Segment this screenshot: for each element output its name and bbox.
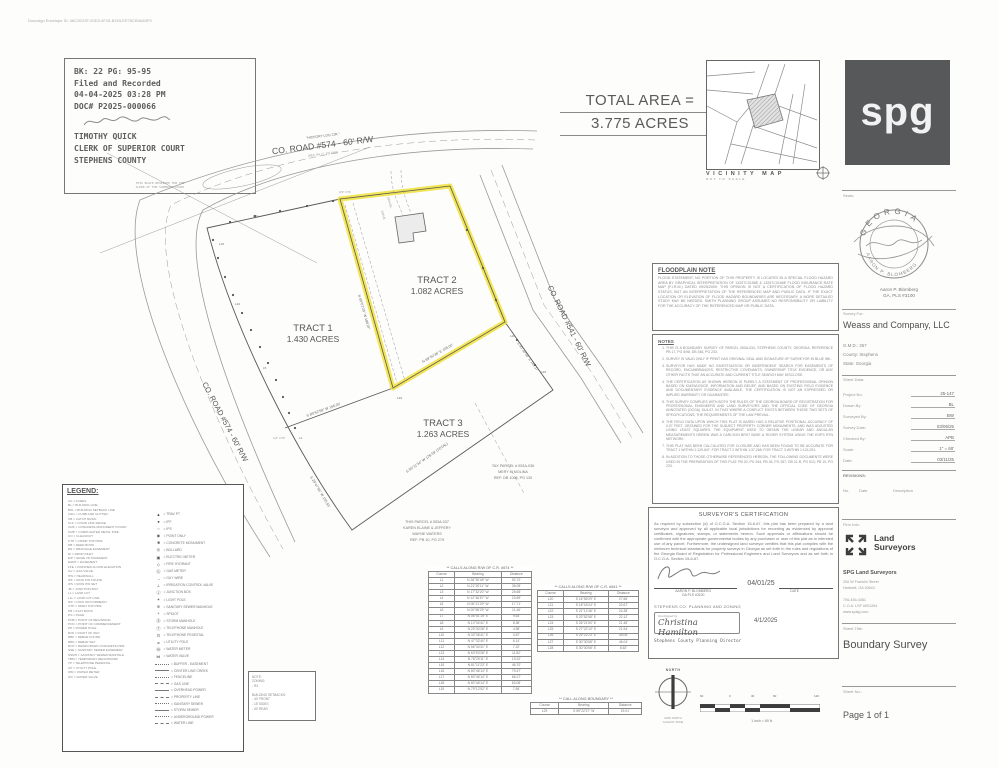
course-mark: L10 bbox=[235, 302, 240, 306]
sheet-data-rows: Project No. 25-147 Drawn By: BL Surveyed… bbox=[843, 386, 955, 463]
legend-symbol-label: = POINT ONLY bbox=[164, 535, 187, 538]
legend-symbol-item: Ⓦ = WATER METER bbox=[155, 648, 241, 652]
sheet-data-row: Surveyed By: BW bbox=[843, 408, 955, 419]
calls-table-cr541: ** CALLS ALONG R/W OF C.R. #541 ** Cours… bbox=[537, 585, 639, 652]
svg-text:GEORGIA: GEORGIA bbox=[858, 207, 921, 238]
legend-symbol-glyph: Ⓦ bbox=[155, 648, 162, 652]
note-item: IN ADDITION TO THOSE OTHERWISE REFERENCE… bbox=[666, 455, 833, 468]
corner-mark: 1/2" CTP bbox=[273, 436, 285, 440]
legend-symbol-label: = WATER METER bbox=[164, 648, 191, 651]
sheet-data-label: Sheet Data: bbox=[843, 377, 864, 382]
legend-symbol-label: = LIGHT POLE bbox=[164, 599, 186, 602]
legend-symbol-label: = IPF bbox=[164, 521, 172, 524]
svg-text:REF: PB 10, PG 279: REF: PB 10, PG 279 bbox=[410, 538, 444, 542]
linetype-sample bbox=[155, 723, 169, 724]
stamp-filed: Filed and Recorded bbox=[74, 78, 246, 90]
stamp-book-page: BK: 22 PG: 95-95 bbox=[74, 66, 246, 78]
certification-title: SURVEYOR'S CERTIFICATION bbox=[654, 512, 833, 518]
sheet-data-field-label: Project No. bbox=[843, 392, 863, 397]
legend-linetype-item: = PROPERTY LINE bbox=[155, 695, 241, 699]
legend-symbol-item: ■ = CONCRETE MONUMENT bbox=[155, 541, 241, 545]
legend-symbol-item: ○ = IPS bbox=[155, 527, 241, 531]
legend-linetypes: = BUFFER - EASEMENT = CENTER LINE CREEK … bbox=[155, 662, 241, 725]
sheet-data-field-value: 25-147 bbox=[911, 391, 955, 398]
legend-symbol-label: = FIRE HYDRANT bbox=[164, 563, 191, 566]
firm-name: SPG Land Surveyors bbox=[843, 570, 897, 576]
legend-symbol-item: ⋈ = WATER VALVE bbox=[155, 655, 241, 659]
legend-symbol-glyph: ⊡ bbox=[155, 634, 162, 638]
seal-surveyor-name: Aaron P. Blomberg GA, PLS #3100 bbox=[843, 287, 955, 300]
legend-symbol-glyph: Ⓙ bbox=[155, 591, 162, 595]
certification-body: As required by subsection (d) of O.C.G.A… bbox=[654, 521, 833, 562]
note-item: THIS IS A BOUNDARY SURVEY OF PARCEL 053A… bbox=[666, 346, 833, 355]
tract2-area: 1.082 ACRES bbox=[411, 286, 464, 296]
planning-director-signature: Christina Hamilton bbox=[658, 618, 736, 638]
course-mark: L29 bbox=[397, 396, 402, 400]
legend-symbol-glyph: ○ bbox=[155, 527, 162, 531]
svg-text:KAREN ELAINE & JEFFERY: KAREN ELAINE & JEFFERY bbox=[403, 526, 451, 530]
floodplain-note-title: FLOODPLAIN NOTE bbox=[658, 268, 833, 274]
docusign-signature-box: DocuSigned by: Christina Hamilton bbox=[654, 612, 740, 634]
firm-phone: 706-436-4381 bbox=[843, 598, 866, 602]
client-name: Weass and Company, LLC bbox=[843, 320, 957, 330]
legend-symbol-glyph: ▲ bbox=[155, 513, 162, 517]
legend-linetype-label: = WATER LINE bbox=[171, 721, 194, 725]
legend-symbol-item: ✶ = LIGHT POLE bbox=[155, 598, 241, 602]
firm-logo-text: Land Surveyors bbox=[874, 534, 916, 553]
calls-table-cr574: ** CALLS ALONG R/W OF C.R. #574 ** Cours… bbox=[428, 566, 532, 694]
vicinity-map-graphic bbox=[707, 61, 817, 167]
divider bbox=[842, 519, 956, 520]
sheet-data-field-label: Scale: bbox=[843, 447, 854, 452]
legend-linetype-label: = BUFFER - EASEMENT bbox=[171, 662, 208, 666]
sheet-data-field-value: 03/06/25 bbox=[911, 424, 955, 431]
sheet-data-row: Drawn By: BL bbox=[843, 397, 955, 408]
adjoiner-molina: TAX PARCEL # 053A-036 MERY M MOLINA REF:… bbox=[492, 464, 534, 480]
tract2-name: TRACT 2 bbox=[417, 275, 456, 286]
legend-symbol-label: = IRRIGATION CONTROL VALVE bbox=[164, 584, 214, 587]
legend-symbol-label: = SANITARY SEWER MANHOLE bbox=[164, 606, 213, 609]
legend-symbol-label: = SPIGOT bbox=[164, 613, 179, 616]
legend-symbol-label: = TRAV PT bbox=[164, 513, 180, 516]
revisions-label: REVISIONS: bbox=[843, 473, 866, 478]
legend-linetype-item: = SANITARY SEWER bbox=[155, 702, 241, 706]
vicinity-map bbox=[706, 60, 820, 170]
legend-symbols: ▲ = TRAV PT ● = IPF ○ = IPS ◉ = POINT ON… bbox=[155, 513, 241, 659]
tract1-name: TRACT 1 bbox=[293, 323, 332, 334]
legend-symbol-label: = UTILITY POLE bbox=[164, 641, 189, 644]
legend-symbol-glyph: ⋈ bbox=[155, 655, 162, 659]
course-mark: L1 bbox=[299, 436, 303, 440]
legend-symbol-item: Ⓣ = TELEPHONE MANHOLE bbox=[155, 627, 241, 631]
seal-arc-top: GEORGIA bbox=[858, 207, 921, 238]
legend-symbol-item: ⊡ = TELEPHONE PEDESTAL bbox=[155, 634, 241, 638]
approver-title: Stephens County Planning Director bbox=[654, 639, 833, 644]
boundary-survey-plat: { "page": { "envelope_id": "Docusign Env… bbox=[0, 0, 999, 768]
north-arrow: NORTH GRID NORTH GA EAST ZONE bbox=[640, 668, 706, 724]
legend-symbol-label: = IPS bbox=[164, 528, 172, 531]
legend-linetype-item: = STORM SEWER bbox=[155, 708, 241, 712]
road-right-label: CO. ROAD #541 - 60' R/W bbox=[546, 284, 593, 369]
table-title: ** CALLS ALONG R/W OF C.R. #574 ** bbox=[428, 566, 532, 570]
note-item: SURVEY IS VALID ONLY IF PRINT HAS ORIGIN… bbox=[666, 357, 833, 361]
sheet-data-field-value: 03/11/25 bbox=[911, 457, 955, 464]
legend-symbol-glyph: ✶ bbox=[155, 598, 162, 602]
legend-linetype-item: = BUFFER - EASEMENT bbox=[155, 662, 241, 666]
sheet-title-label: Sheet Title: bbox=[843, 626, 863, 631]
sheet-number: Page 1 of 1 bbox=[843, 710, 889, 720]
svg-text:WAYNE WATERS: WAYNE WATERS bbox=[412, 532, 442, 536]
seals-label: Seals: bbox=[843, 193, 854, 198]
legend-symbol-label: = BOLLARD bbox=[164, 549, 182, 552]
spg-logo-text: spg bbox=[860, 90, 934, 135]
legend-symbol-glyph: ▣ bbox=[155, 556, 162, 560]
course-mark: L5 bbox=[263, 366, 267, 370]
legend-symbol-item: ● = IPF bbox=[155, 520, 241, 524]
sheet-data-field-label: Date: bbox=[843, 458, 853, 463]
legend-symbol-glyph: ● bbox=[155, 520, 162, 524]
legend-symbol-glyph: ⊥ bbox=[155, 584, 162, 588]
legend-symbol-glyph: + bbox=[155, 612, 162, 616]
gravel-label: GRAVEL bbox=[386, 196, 393, 209]
divider bbox=[842, 470, 956, 471]
legend-symbol-label: = ELECTRIC METER bbox=[164, 556, 196, 559]
firm-website: www.spslg.com bbox=[843, 610, 868, 614]
gmd-value: G.M.D.: 267 bbox=[843, 343, 867, 348]
legend-linetype-item: = OVERHEAD POWER bbox=[155, 688, 241, 692]
legend-linetype-label: = CENTER LINE CREEK bbox=[171, 669, 208, 673]
legend-symbol-label: = TELEPHONE PEDESTAL bbox=[164, 634, 205, 637]
tract1-area: 1.430 ACRES bbox=[287, 334, 340, 344]
surveyor-seal: GEORGIA AARON P. BLOMBERG bbox=[852, 202, 936, 286]
scale-tick-labels: 60 0 30 60 120 bbox=[700, 694, 824, 699]
legend-linetype-label: = PROPERTY LINE bbox=[171, 695, 200, 699]
date-label: DATE bbox=[756, 589, 833, 593]
linetype-sample bbox=[155, 683, 169, 684]
table-row: L28S 30°30'58" E8.63' bbox=[538, 645, 639, 651]
legend-abbreviations: AC = ACRESBL = BUILDING LINEBSL = BUILDI… bbox=[68, 499, 150, 679]
linetype-sample bbox=[155, 716, 169, 717]
legend-symbol-glyph: Ⓖ bbox=[155, 570, 162, 574]
legend-linetype-item: = WATER LINE bbox=[155, 721, 241, 725]
firm-address-1: 206 W Franklin Street bbox=[843, 580, 879, 584]
note-item: THE CERTIFICATION AS SHOWN HEREON IS PUR… bbox=[666, 380, 833, 398]
svg-text:TAX PARCEL # 053A-036: TAX PARCEL # 053A-036 bbox=[492, 464, 534, 468]
legend-title: LEGEND: bbox=[67, 488, 239, 495]
sheet-data-field-label: Surveyed By: bbox=[843, 414, 867, 419]
approval-date: 4/1/2025 bbox=[754, 618, 777, 624]
spg-logo: spg bbox=[845, 60, 950, 165]
legend-symbol-glyph: ■ bbox=[155, 541, 162, 545]
firm-coa: C.O.A. LSF #001264 bbox=[843, 604, 877, 608]
bearing-label: S 89°52'58" W 165.00' bbox=[306, 402, 341, 418]
vicinity-map-caption: VICINITY MAP NOT TO SCALE bbox=[706, 171, 818, 181]
grid-zone-label: GA EAST ZONE bbox=[640, 721, 706, 725]
stamp-doc-number: DOC# P2025-000066 bbox=[74, 101, 246, 113]
revisions-header: No. Date Description bbox=[843, 488, 955, 493]
legend-symbol-glyph: → bbox=[155, 577, 162, 581]
scale-bar-graphic bbox=[700, 704, 820, 712]
linetype-sample bbox=[155, 677, 169, 678]
surveyor-signature bbox=[654, 563, 724, 583]
sheet-data-field-value: APB bbox=[911, 435, 955, 442]
firm-info-label: Firm Info: bbox=[843, 522, 860, 527]
corner-mark: 3/4" CTF bbox=[339, 190, 351, 194]
legend-linetype-label: = STORM SEWER bbox=[171, 708, 199, 712]
legend-symbol-glyph: ◇ bbox=[155, 563, 162, 567]
divider bbox=[842, 309, 956, 310]
building-footprint bbox=[395, 213, 426, 243]
sheet-data-field-label: Checked By: bbox=[843, 436, 866, 441]
envelope-id-text: Docusign Envelope ID: 46C2E23F-53D3-4F15… bbox=[28, 18, 152, 23]
sheet-data-row: Date: 03/11/25 bbox=[843, 452, 955, 463]
graphic-scale: 60 0 30 60 120 1 inch = 60 ft. bbox=[700, 694, 824, 723]
linetype-sample bbox=[155, 710, 169, 711]
linetype-sample bbox=[155, 697, 169, 698]
legend-symbol-glyph: ⊕ bbox=[155, 605, 162, 609]
drive-label: DRIVE bbox=[380, 210, 386, 220]
table-row: L19N 79°12'52" E7.84' bbox=[429, 687, 532, 693]
legend-linetype-label: = FENCELINE bbox=[171, 675, 192, 679]
state-value: State: Georgia bbox=[843, 361, 871, 366]
legend-symbol-label: = CONCRETE MONUMENT bbox=[164, 542, 206, 545]
course-mark: L25 bbox=[541, 370, 546, 374]
course-mark: L20 bbox=[510, 334, 515, 338]
legend-symbol-item: ◇ = FIRE HYDRANT bbox=[155, 563, 241, 567]
legend-symbol-item: Ⓙ = JUNCTION BOX bbox=[155, 591, 241, 595]
legend-linetype-item: = GAS LINE bbox=[155, 682, 241, 686]
divider bbox=[842, 375, 956, 376]
vicinity-map-subtitle: NOT TO SCALE bbox=[706, 177, 818, 181]
course-mark: L15 bbox=[219, 242, 224, 246]
sheet-no-label: Sheet No.: bbox=[843, 689, 862, 694]
svg-text:THIS PARCEL # 053A-037: THIS PARCEL # 053A-037 bbox=[405, 520, 449, 524]
certification-date: 04/01/25 bbox=[747, 580, 774, 587]
sheet-data-row: Survey Date: 03/06/25 bbox=[843, 419, 955, 430]
sheet-data-row: Project No. 25-147 bbox=[843, 386, 955, 397]
adjoiner-waters: THIS PARCEL # 053A-037 KAREN ELAINE & JE… bbox=[403, 520, 451, 542]
legend-symbol-item: Ⓢ = STORM MANHOLE bbox=[155, 619, 241, 623]
legend-abbreviation: WV = WATER VALVE bbox=[68, 675, 150, 679]
tract3-name: TRACT 3 bbox=[423, 418, 462, 429]
legend-symbol-label: = WATER VALVE bbox=[164, 655, 189, 658]
legend-symbol-item: + = SPIGOT bbox=[155, 612, 241, 616]
linetype-sample bbox=[155, 703, 169, 704]
scale-caption: 1 inch = 60 ft. bbox=[700, 719, 824, 723]
sheet-data-field-value: 1" = 60' bbox=[911, 446, 955, 453]
sheet-title: Boundary Survey bbox=[843, 639, 927, 651]
zoning-note-box: NOTE:ZONING:- R3BUILDING SETBACKS:- 40' … bbox=[248, 671, 316, 721]
legend-symbol-item: ◉ = POINT ONLY bbox=[155, 534, 241, 538]
floodplain-note: FLOODPLAIN NOTE FLOOD STATEMENT: NO PORT… bbox=[652, 263, 839, 331]
sheet-data-field-label: Survey Date: bbox=[843, 425, 866, 430]
legend-symbol-glyph: Ⓣ bbox=[155, 627, 162, 631]
sheet-data-row: Checked By: APB bbox=[843, 430, 955, 441]
linetype-sample bbox=[155, 664, 169, 665]
legend-symbol-item: ⊥ = IRRIGATION CONTROL VALVE bbox=[155, 584, 241, 588]
legend-symbol-glyph: Ⓢ bbox=[155, 619, 162, 623]
sheet-data-row: Scale: 1" = 60' bbox=[843, 441, 955, 452]
table-title: ** CALL ALONG BOUNDARY ** bbox=[530, 697, 642, 701]
tract3-area: 1.263 ACRES bbox=[417, 429, 470, 439]
notes-list: THIS IS A BOUNDARY SURVEY OF PARCEL 053A… bbox=[658, 346, 833, 468]
legend-symbol-item: ▲ = TRAV PT bbox=[155, 513, 241, 517]
survey-for-label: Survey For: bbox=[843, 311, 864, 316]
notes-section: NOTES THIS IS A BOUNDARY SURVEY OF PARCE… bbox=[652, 334, 839, 504]
divider bbox=[842, 190, 956, 191]
legend-symbol-glyph: ◉ bbox=[155, 534, 162, 538]
legend-linetype-label: = UNDERGROUND POWER bbox=[171, 715, 214, 719]
legend-linetype-label: = OVERHEAD POWER bbox=[171, 688, 206, 692]
table-title: ** CALLS ALONG R/W OF C.R. #541 ** bbox=[537, 585, 639, 589]
legend: LEGEND: AC = ACRESBL = BUILDING LINEBSL … bbox=[62, 484, 244, 752]
legend-symbol-item: Ⓖ = GAS METER bbox=[155, 570, 241, 574]
legend-symbol-item: ◎ = BOLLARD bbox=[155, 548, 241, 552]
stamp-datetime: 04-04-2025 03:28 PM bbox=[74, 89, 246, 101]
legend-linetype-item: = UNDERGROUND POWER bbox=[155, 715, 241, 719]
svg-text:MERY M MOLINA: MERY M MOLINA bbox=[498, 470, 528, 474]
divider bbox=[842, 686, 956, 687]
surveyors-certification: SURVEYOR'S CERTIFICATION As required by … bbox=[648, 507, 839, 659]
registration-mark-icon bbox=[816, 166, 830, 180]
legend-symbol-label: = TELEPHONE MANHOLE bbox=[164, 627, 204, 630]
legend-symbol-label: = GUY WIRE bbox=[164, 577, 183, 580]
legend-symbol-item: ⌀ = UTILITY POLE bbox=[155, 641, 241, 645]
note-item: THIS SURVEY COMPLIES WITH BOTH THE RULES… bbox=[666, 400, 833, 418]
legend-symbol-item: ⊕ = SANITARY SEWER MANHOLE bbox=[155, 605, 241, 609]
legend-linetype-label: = GAS LINE bbox=[171, 682, 189, 686]
course-mark: L19 bbox=[253, 214, 258, 218]
table-row: L29S 59°22'37" W19.01' bbox=[531, 709, 642, 715]
sheet-data-field-value: BW bbox=[911, 413, 955, 420]
sheet-data-field-label: Drawn By: bbox=[843, 403, 861, 408]
county-value: County: Stephens bbox=[843, 352, 878, 357]
legend-linetype-item: = CENTER LINE CREEK bbox=[155, 669, 241, 673]
note-item: THE FIELD DATA UPON WHICH THIS PLAT IS B… bbox=[666, 420, 833, 442]
sheet-data-field-value: BL bbox=[911, 402, 955, 409]
total-area-label: TOTAL AREA = bbox=[560, 92, 720, 113]
bearing-label: S 29°47'56" W 155.55' bbox=[309, 475, 331, 508]
legend-symbol-glyph: ⌀ bbox=[155, 641, 162, 645]
linetype-sample bbox=[155, 690, 169, 691]
divider bbox=[842, 623, 956, 624]
legend-symbol-label: = JUNCTION BOX bbox=[164, 591, 191, 594]
svg-text:REF: DB 1098, PG 130: REF: DB 1098, PG 130 bbox=[494, 476, 532, 480]
firm-address-2: Hartwell, GA 30643 bbox=[843, 586, 875, 590]
bearing-label: S 30°30'58" E 141.17' bbox=[516, 341, 539, 372]
linetype-sample bbox=[155, 670, 169, 671]
zoning-note-line: - 40' REAR bbox=[252, 707, 312, 712]
legend-linetype-item: = FENCELINE bbox=[155, 675, 241, 679]
legend-symbol-item: ▣ = ELECTRIC METER bbox=[155, 556, 241, 560]
legend-symbol-label: = GAS METER bbox=[164, 570, 186, 573]
firm-logo-arrows-icon bbox=[843, 532, 869, 558]
surveyor-signature-line bbox=[654, 563, 737, 589]
legend-symbol-label: = STORM MANHOLE bbox=[164, 620, 196, 623]
bearing-label: S 59°11'34" W 178.59' (TOTAL) bbox=[405, 442, 448, 474]
note-item: THIS PLAT HAS BEEN CALCULATED FOR CLOSUR… bbox=[666, 444, 833, 453]
legend-symbol-item: → = GUY WIRE bbox=[155, 577, 241, 581]
floodplain-note-body: FLOOD STATEMENT: NO PORTION OF THIS PROP… bbox=[658, 276, 833, 309]
notes-title: NOTES bbox=[658, 339, 833, 344]
legend-linetype-label: = SANITARY SEWER bbox=[171, 702, 203, 706]
gravel-drive-lines bbox=[345, 170, 525, 495]
north-arrow-icon bbox=[653, 672, 693, 712]
surveyor-license: GA PLS #3100 bbox=[654, 593, 732, 597]
call-along-boundary-table: ** CALL ALONG BOUNDARY ** Course Bearing… bbox=[530, 697, 642, 715]
legend-symbol-glyph: ◎ bbox=[155, 548, 162, 552]
note-item: SURVEYOR HAS MADE NO INVESTIGATION OR IN… bbox=[666, 364, 833, 377]
